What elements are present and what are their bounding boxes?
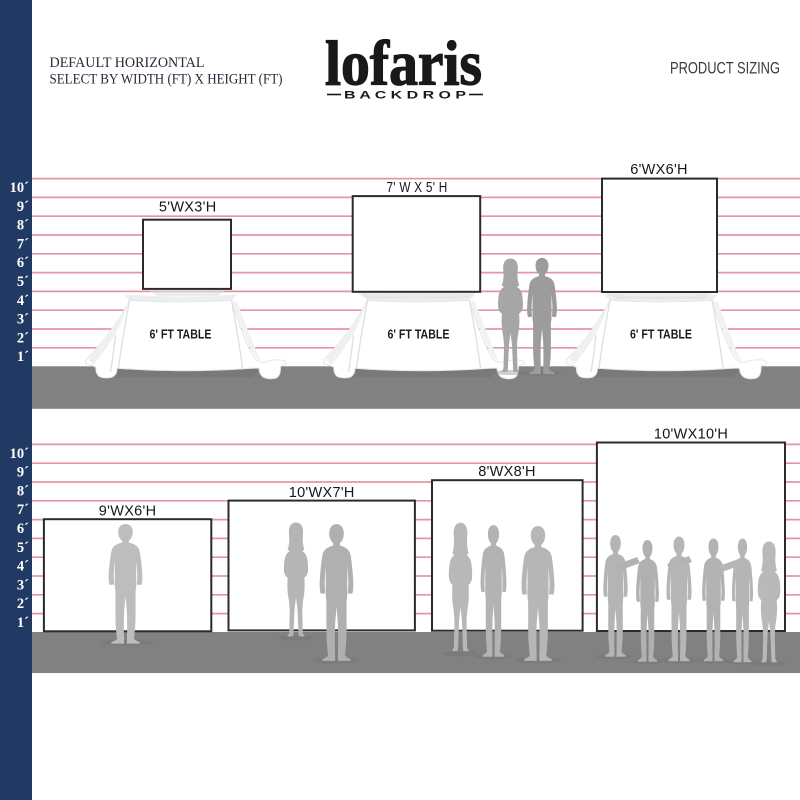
svg-text:5´: 5´	[17, 540, 29, 556]
svg-text:4´: 4´	[17, 293, 29, 309]
svg-text:7' W X 5' H: 7' W X 5' H	[387, 180, 448, 196]
svg-text:4´: 4´	[17, 559, 29, 575]
svg-text:6'WX6'H: 6'WX6'H	[630, 162, 688, 178]
svg-text:9´: 9´	[17, 199, 29, 215]
svg-text:6´: 6´	[17, 521, 29, 537]
svg-text:2´: 2´	[17, 596, 29, 612]
svg-text:10'WX10'H: 10'WX10'H	[654, 427, 728, 443]
svg-text:3´: 3´	[17, 312, 29, 328]
svg-text:1´: 1´	[17, 349, 29, 365]
svg-text:lofaris: lofaris	[325, 28, 482, 99]
svg-text:8'WX8'H: 8'WX8'H	[478, 464, 536, 480]
svg-text:8´: 8´	[17, 218, 29, 234]
svg-text:6' FT TABLE: 6' FT TABLE	[150, 327, 212, 341]
svg-text:B A C K D R O P: B A C K D R O P	[344, 90, 466, 102]
svg-text:10'WX7'H: 10'WX7'H	[289, 485, 355, 501]
svg-text:PRODUCT SIZING: PRODUCT SIZING	[670, 59, 780, 78]
svg-text:9´: 9´	[17, 465, 29, 481]
svg-text:6' FT TABLE: 6' FT TABLE	[388, 327, 450, 341]
svg-text:6' FT TABLE: 6' FT TABLE	[630, 327, 692, 341]
svg-text:10´: 10´	[10, 180, 30, 196]
svg-text:SELECT BY WIDTH (FT) X HEIGHT: SELECT BY WIDTH (FT) X HEIGHT (FT)	[50, 72, 283, 88]
svg-text:8´: 8´	[17, 483, 29, 499]
svg-text:5´: 5´	[17, 274, 29, 290]
svg-text:1´: 1´	[17, 615, 29, 631]
svg-text:2´: 2´	[17, 330, 29, 346]
svg-text:10´: 10´	[10, 446, 30, 462]
svg-text:9'WX6'H: 9'WX6'H	[99, 504, 157, 520]
svg-text:3´: 3´	[17, 577, 29, 593]
svg-text:7´: 7´	[17, 502, 29, 518]
svg-text:7´: 7´	[17, 236, 29, 252]
svg-text:5'WX3'H: 5'WX3'H	[159, 200, 217, 216]
svg-text:6´: 6´	[17, 255, 29, 271]
svg-text:DEFAULT HORIZONTAL: DEFAULT HORIZONTAL	[50, 55, 205, 71]
